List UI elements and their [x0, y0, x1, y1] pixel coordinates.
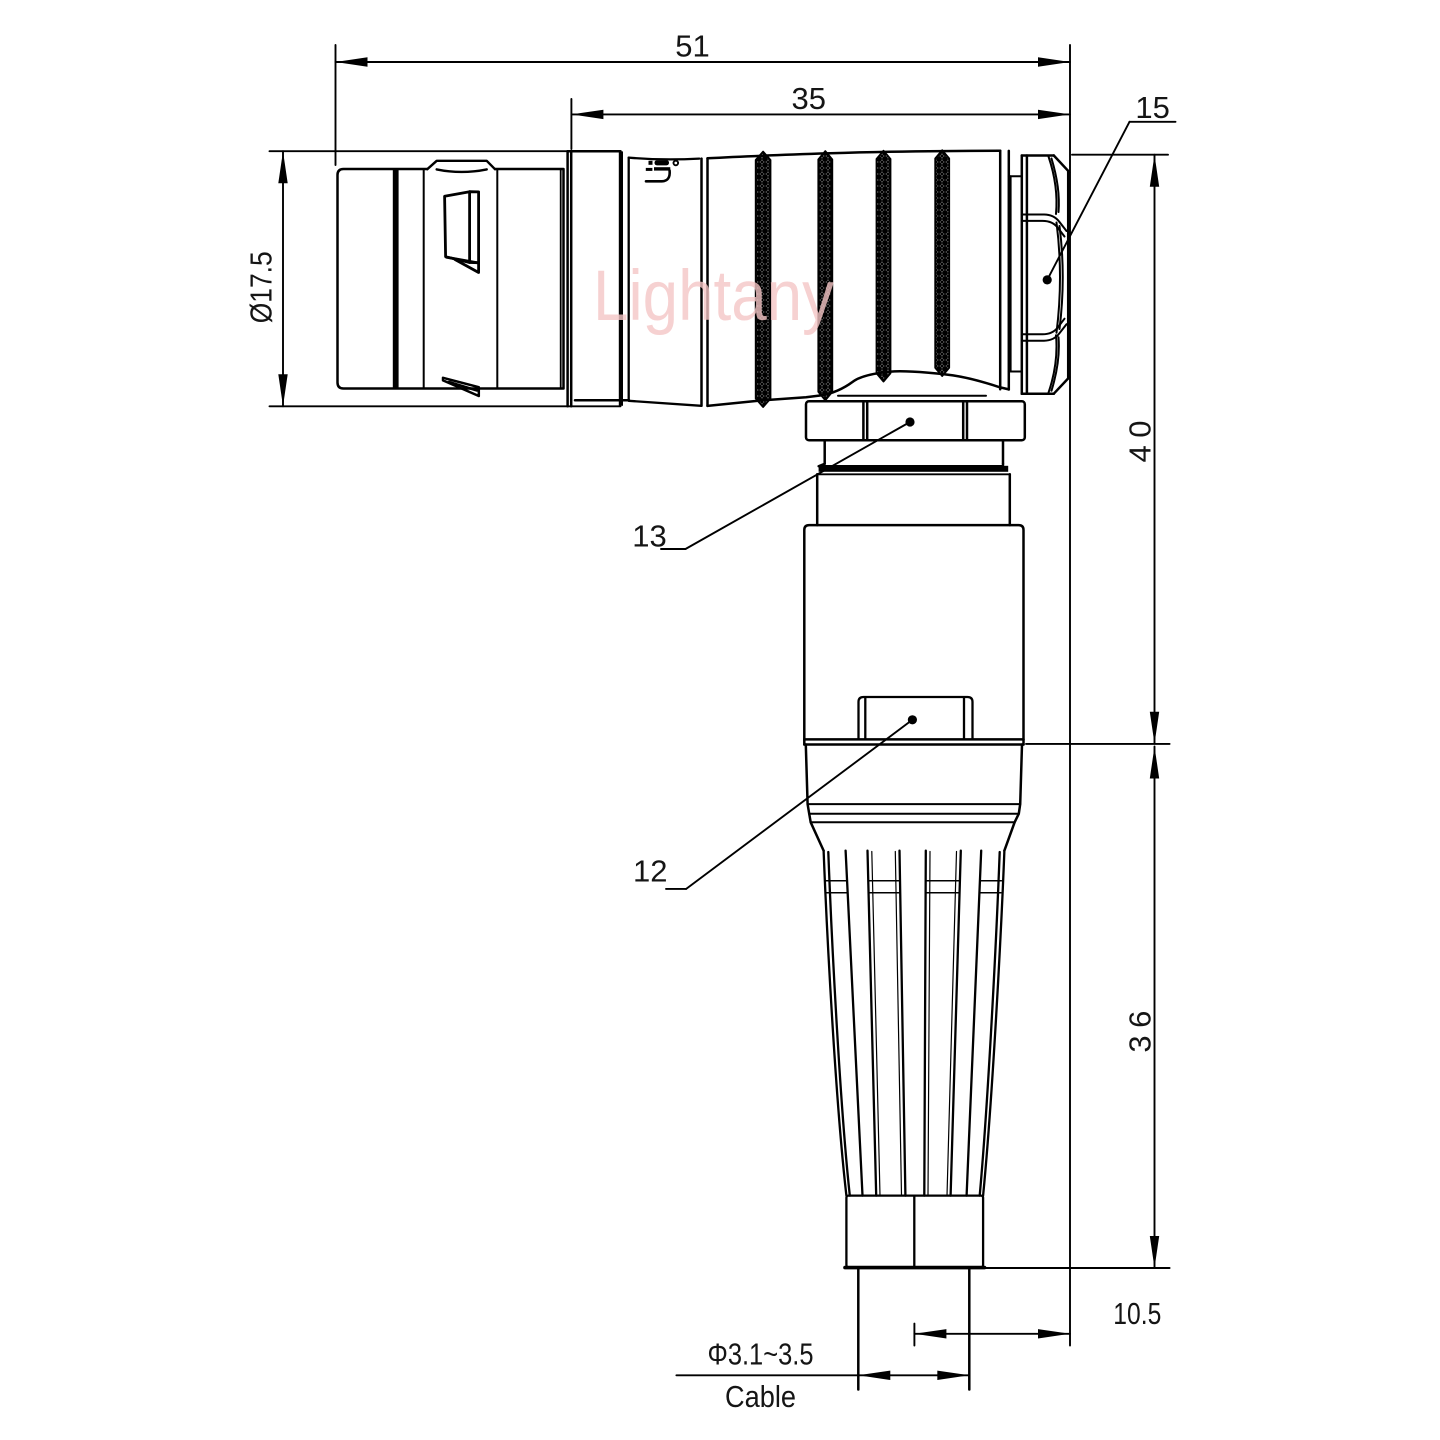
svg-text:Cable: Cable — [725, 1379, 796, 1414]
svg-text:10.5: 10.5 — [1113, 1296, 1161, 1331]
svg-text:51: 51 — [675, 29, 709, 64]
svg-text:Lightany: Lightany — [593, 257, 834, 336]
svg-text:Ø17.5: Ø17.5 — [244, 251, 279, 323]
svg-text:12: 12 — [633, 854, 667, 889]
svg-text:Φ3.1~3.5: Φ3.1~3.5 — [708, 1337, 814, 1372]
svg-text:13: 13 — [632, 519, 666, 554]
svg-text:35: 35 — [792, 81, 826, 116]
svg-text:15: 15 — [1135, 90, 1169, 125]
